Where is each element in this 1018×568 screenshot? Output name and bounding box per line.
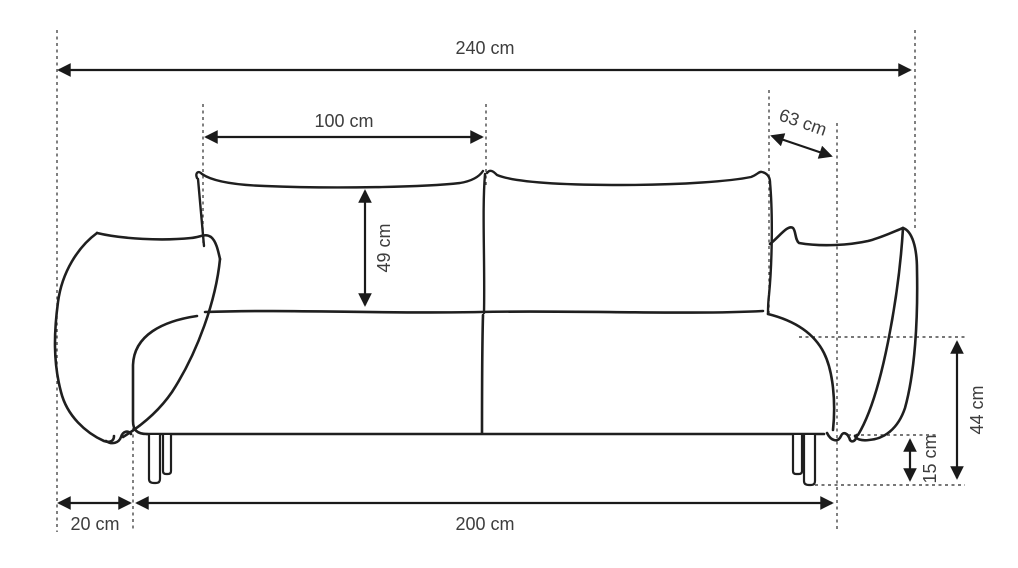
dimension-seat-width: 200 cm — [137, 503, 832, 534]
left-pillow-top-edge — [97, 233, 220, 259]
cushion-width-label: 100 cm — [314, 111, 373, 131]
left-back-leg — [163, 435, 171, 474]
right-back-leg — [793, 435, 802, 474]
dimension-leg-height: 15 cm — [910, 434, 940, 483]
dimension-back-cushion-height: 49 cm — [365, 191, 394, 305]
sofa-left-front-edge — [133, 316, 197, 434]
diagram-svg: 240 cm 100 cm 63 cm 49 cm 44 cm 15 cm — [0, 0, 1018, 568]
armrest-width-label: 20 cm — [70, 514, 119, 534]
sofa-legs — [149, 435, 815, 485]
back-cushion-middle-seam — [484, 174, 485, 313]
seat-width-label: 200 cm — [455, 514, 514, 534]
right-pillow-outer-edge — [855, 228, 917, 440]
right-back-cushion-top-edge — [487, 171, 770, 185]
dimension-depth: 63 cm — [772, 105, 831, 156]
dimension-armrest-width: 20 cm — [59, 503, 130, 534]
sofa-body — [133, 227, 903, 434]
left-back-cushion — [196, 171, 483, 246]
dimensions: 240 cm 100 cm 63 cm 49 cm 44 cm 15 cm — [59, 38, 987, 534]
dimension-seat-height: 44 cm — [957, 342, 987, 478]
sofa-front-seam — [482, 315, 483, 433]
right-pillow-inner-edge — [858, 228, 903, 435]
guide-lines — [57, 30, 965, 532]
sofa-dimension-diagram: 240 cm 100 cm 63 cm 49 cm 44 cm 15 cm — [0, 0, 1018, 568]
sofa-right-front-corner — [768, 314, 834, 430]
seat-height-label: 44 cm — [967, 385, 987, 434]
sofa-drawing — [55, 171, 917, 485]
right-armrest-pillow — [827, 228, 917, 441]
left-armrest-pillow — [55, 233, 220, 443]
dimension-back-cushion-width: 100 cm — [206, 111, 482, 137]
right-back-cushion — [484, 171, 772, 314]
leg-height-label: 15 cm — [920, 434, 940, 483]
left-pillow-outer-edge — [55, 233, 114, 442]
depth-label: 63 cm — [777, 105, 830, 140]
total-width-label: 240 cm — [455, 38, 514, 58]
right-front-leg — [804, 435, 815, 485]
right-pillow-bottom-fold — [827, 433, 857, 441]
dimension-total-width: 240 cm — [59, 38, 910, 70]
cushion-height-label: 49 cm — [374, 223, 394, 272]
left-back-cushion-top-edge — [196, 171, 483, 187]
left-front-leg — [149, 435, 160, 483]
